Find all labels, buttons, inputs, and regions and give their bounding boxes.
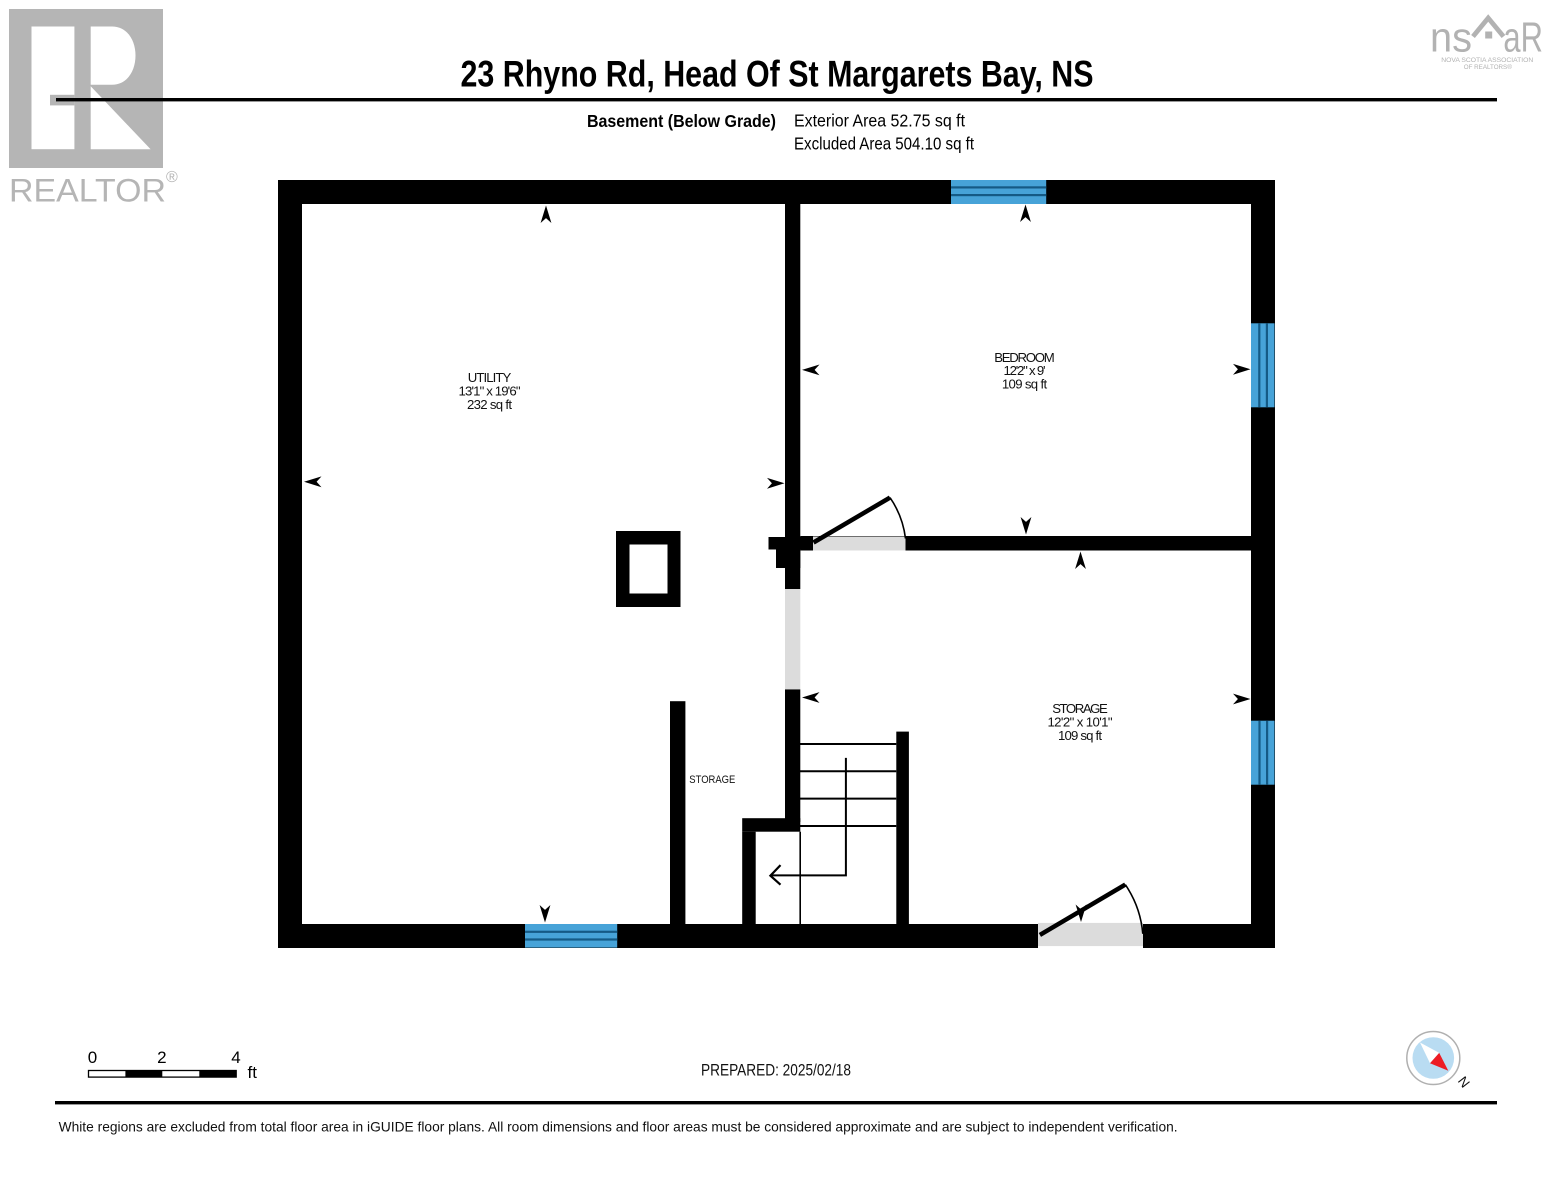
svg-text:OF REALTORS®: OF REALTORS® (1464, 63, 1512, 71)
svg-text:STORAGE: STORAGE (689, 774, 735, 786)
svg-text:4: 4 (231, 1048, 240, 1067)
svg-text:®: ® (166, 169, 178, 186)
svg-text:109 sq ft: 109 sq ft (1002, 377, 1048, 392)
svg-text:ns: ns (1430, 14, 1472, 61)
svg-text:Excluded Area 504.10 sq ft: Excluded Area 504.10 sq ft (794, 134, 974, 154)
svg-text:109 sq ft: 109 sq ft (1058, 728, 1102, 743)
svg-text:NOVA SCOTIA ASSOCIATION: NOVA SCOTIA ASSOCIATION (1441, 57, 1533, 64)
svg-text:aR: aR (1503, 14, 1543, 61)
svg-text:0: 0 (88, 1048, 97, 1067)
svg-text:REALTOR: REALTOR (9, 173, 166, 209)
svg-text:White regions are excluded fro: White regions are excluded from total fl… (59, 1119, 1178, 1135)
svg-text:PREPARED: 2025/02/18: PREPARED: 2025/02/18 (701, 1061, 851, 1080)
svg-text:Basement (Below Grade): Basement (Below Grade) (587, 111, 776, 131)
svg-text:2: 2 (157, 1048, 166, 1067)
svg-text:23 Rhyno Rd, Head Of St Margar: 23 Rhyno Rd, Head Of St Margarets Bay, N… (461, 54, 1094, 95)
svg-text:ft: ft (248, 1063, 258, 1082)
svg-text:232 sq ft: 232 sq ft (467, 397, 512, 412)
svg-text:Exterior Area 52.75 sq ft: Exterior Area 52.75 sq ft (794, 110, 965, 130)
